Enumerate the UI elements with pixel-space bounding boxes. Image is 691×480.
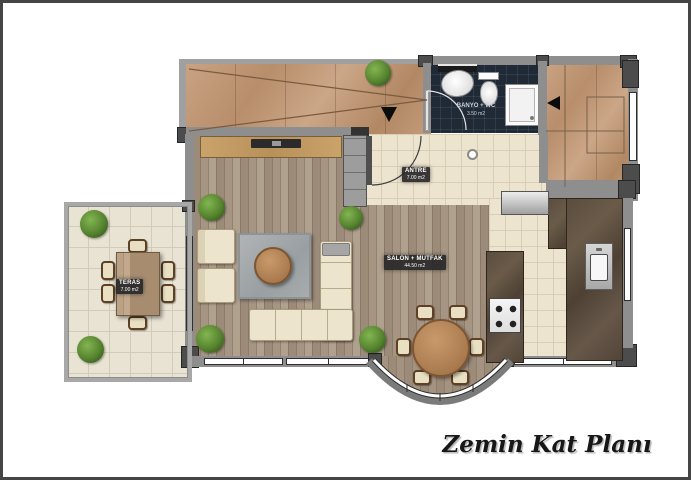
room-area: 3.50 m2 [443,111,509,117]
plan-title: Zemin Kat Planı [441,431,653,458]
window-mullion [563,358,564,365]
armchair [197,229,235,264]
living-top-wall [186,127,369,136]
room-name: TERAS [119,280,140,287]
plant [359,326,386,353]
corner-column [622,60,639,88]
terrace-chair [161,284,175,303]
porch-left-wall [179,59,186,136]
room-label-teras: TERAS 7.00 m2 [116,279,143,294]
dining-chair [396,338,411,356]
hall-stair-wall [539,131,548,183]
room-area: 7.00 m2 [119,287,140,293]
room-label-salon: SALON + MUTFAK 44.50 m2 [384,255,446,270]
room-label-antre: ANTRE 7.00 m2 [402,167,430,182]
shower-drain [530,116,534,120]
plant [198,194,225,221]
porch-top-wall [185,59,431,64]
bay-column [368,353,382,367]
faucet [596,248,602,251]
room-name: BANYO + WC [443,103,509,111]
floor-plan-page: BANYO + WC 3.50 m2 ANTRE 7.00 m2 SALON +… [0,0,691,480]
cooktop [489,298,521,333]
plant [196,325,224,353]
column-marker [467,149,478,160]
room-area: 44.50 m2 [387,263,443,269]
armchair [197,268,235,303]
l-shaped-sofa [249,309,353,341]
bathroom-stair-wall [538,61,547,135]
plant [77,336,104,363]
room-name: ANTRE [405,168,427,175]
toilet-tank [478,72,499,80]
corner-column [618,180,636,199]
entry-door-leaf [367,136,372,185]
refrigerator [501,191,549,215]
plant [80,210,108,238]
entry-porch-floor [185,63,431,136]
wardrobe [343,135,367,207]
terrace-chair [128,239,147,253]
stair-window [629,92,637,161]
kitchen-sink [590,254,608,281]
room-area: 7.00 m2 [405,175,427,181]
terrace-chair [101,261,115,280]
plant [365,60,391,86]
bathroom-door-leaf [425,90,429,131]
sofa-pillow [322,243,350,256]
tv-stand [272,141,281,146]
dining-chair [449,305,467,320]
terrace-chair [161,261,175,280]
round-dining-table [412,319,470,377]
room-name: SALON + MUTFAK [387,256,443,263]
dining-chair [469,338,484,356]
terrace-chair [101,284,115,303]
dining-chair [416,305,434,320]
room-label-banyo: BANYO + WC 3.50 m2 [443,103,509,117]
window-mullion [328,358,329,365]
plant [339,206,363,230]
coffee-table [254,247,292,285]
kitchen-side-window [624,228,631,301]
terrace-chair [128,316,147,330]
window-mullion [243,358,244,365]
staircase-floor [546,63,633,198]
